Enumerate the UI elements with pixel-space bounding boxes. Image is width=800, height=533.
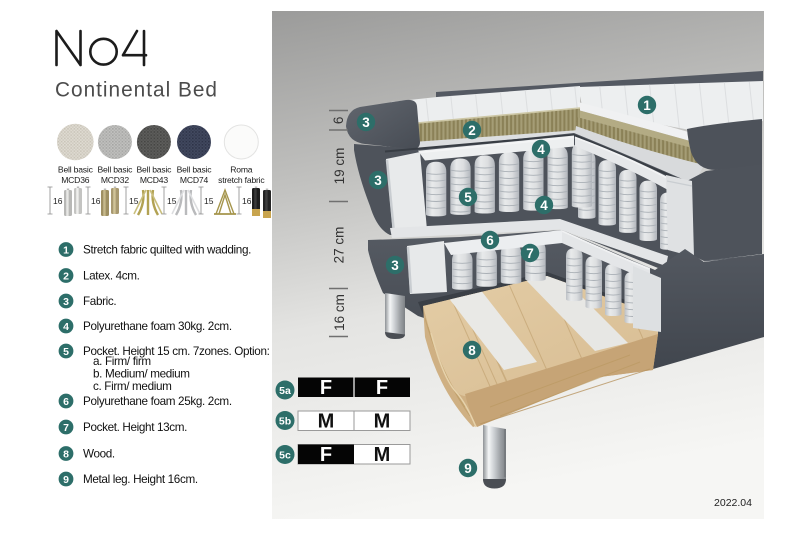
svg-text:5: 5 [464, 190, 472, 205]
svg-text:Fabric.: Fabric. [83, 295, 116, 308]
svg-text:3: 3 [362, 115, 370, 130]
svg-text:F: F [376, 377, 388, 399]
svg-text:6: 6 [331, 117, 346, 125]
svg-text:1: 1 [643, 98, 651, 113]
svg-text:Pocket. Height 13cm.: Pocket. Height 13cm. [83, 421, 187, 434]
svg-text:19 cm: 19 cm [332, 148, 347, 185]
svg-text:3: 3 [63, 296, 69, 308]
svg-text:27 cm: 27 cm [331, 227, 346, 264]
svg-text:3: 3 [391, 258, 399, 273]
svg-text:4: 4 [537, 142, 545, 157]
svg-text:Polyurethane foam 25kg. 2cm.: Polyurethane foam 25kg. 2cm. [83, 395, 232, 408]
svg-text:3: 3 [374, 173, 382, 188]
svg-text:F: F [320, 444, 332, 466]
svg-text:Bell basic: Bell basic [98, 165, 134, 175]
svg-text:Roma: Roma [230, 165, 253, 175]
svg-text:a. Firm/ firm: a. Firm/ firm [93, 355, 151, 368]
svg-text:Wood.: Wood. [83, 448, 115, 461]
svg-text:5a: 5a [279, 385, 291, 397]
svg-text:MCD32: MCD32 [101, 175, 130, 185]
svg-text:Continental Bed: Continental Bed [55, 79, 218, 102]
svg-text:stretch fabric: stretch fabric [218, 175, 265, 185]
svg-text:2022.04: 2022.04 [714, 497, 752, 509]
svg-text:2: 2 [63, 270, 69, 282]
svg-text:b. Medium/ medium: b. Medium/ medium [93, 368, 190, 381]
svg-text:6: 6 [63, 396, 69, 408]
svg-text:Bell basic: Bell basic [177, 165, 213, 175]
svg-text:F: F [320, 377, 332, 399]
svg-text:15: 15 [167, 196, 177, 206]
svg-text:5c: 5c [279, 449, 291, 461]
svg-text:Metal leg. Height 16cm.: Metal leg. Height 16cm. [83, 473, 198, 486]
svg-text:6: 6 [486, 233, 494, 248]
svg-text:5: 5 [63, 346, 69, 358]
svg-text:16: 16 [242, 196, 252, 206]
svg-text:Bell basic: Bell basic [58, 165, 94, 175]
svg-text:4: 4 [63, 321, 69, 333]
svg-text:7: 7 [63, 422, 69, 434]
svg-text:9: 9 [63, 474, 69, 486]
svg-text:8: 8 [468, 343, 476, 358]
svg-text:MCD43: MCD43 [140, 175, 169, 185]
svg-text:M: M [374, 444, 391, 466]
svg-text:7: 7 [526, 246, 534, 261]
svg-text:MCD74: MCD74 [180, 175, 209, 185]
svg-text:2: 2 [468, 123, 476, 138]
svg-text:M: M [318, 411, 335, 433]
svg-text:Bell basic: Bell basic [137, 165, 173, 175]
svg-text:5b: 5b [279, 415, 291, 427]
svg-text:15: 15 [204, 196, 214, 206]
svg-text:M: M [374, 411, 391, 433]
svg-text:8: 8 [63, 448, 69, 460]
svg-text:Stretch fabric quilted with wa: Stretch fabric quilted with wadding. [83, 244, 251, 257]
svg-text:16: 16 [53, 196, 63, 206]
svg-text:16 cm: 16 cm [332, 294, 347, 331]
svg-text:1: 1 [63, 244, 69, 256]
svg-text:c. Firm/ medium: c. Firm/ medium [93, 380, 172, 393]
svg-text:MCD36: MCD36 [61, 175, 90, 185]
svg-text:9: 9 [464, 461, 472, 476]
svg-text:Latex. 4cm.: Latex. 4cm. [83, 270, 140, 283]
svg-text:15: 15 [129, 196, 139, 206]
svg-text:4: 4 [540, 198, 548, 213]
svg-text:16: 16 [91, 196, 101, 206]
svg-text:Polyurethane foam 30kg. 2cm.: Polyurethane foam 30kg. 2cm. [83, 320, 232, 333]
